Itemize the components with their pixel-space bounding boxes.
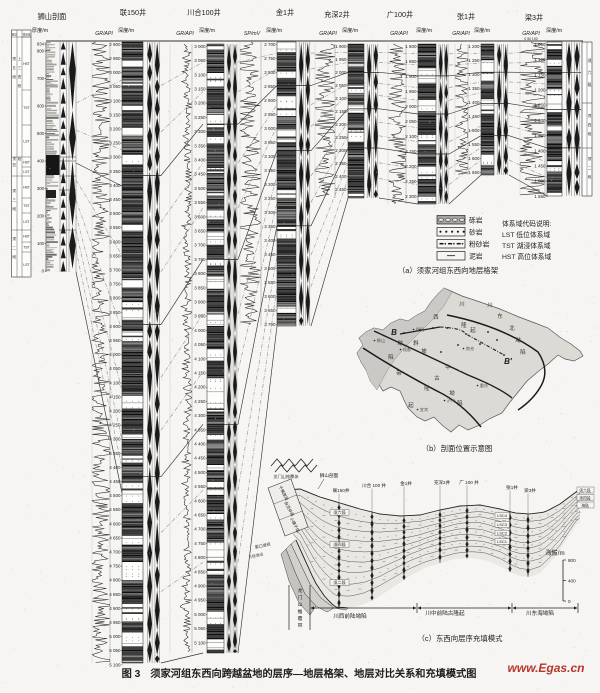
svg-text:深度/m: 深度/m <box>199 26 215 34</box>
svg-text:GR/API: GR/API <box>95 31 113 37</box>
svg-text:4 300: 4 300 <box>194 413 206 418</box>
svg-text:4 250: 4 250 <box>194 399 206 404</box>
svg-text:须四段: 须四段 <box>579 496 591 501</box>
svg-text:2 200: 2 200 <box>335 122 347 127</box>
svg-text:须: 须 <box>12 56 16 61</box>
svg-text:4 100: 4 100 <box>109 380 121 385</box>
svg-text:（c）东西向层序充填模式: （c）东西向层序充填模式 <box>418 634 504 643</box>
svg-text:3 700: 3 700 <box>194 243 206 248</box>
svg-text:须六段: 须六段 <box>579 488 591 493</box>
svg-text:坳: 坳 <box>397 339 403 347</box>
svg-text:梁3井: 梁3井 <box>525 13 543 22</box>
svg-text:600: 600 <box>37 104 45 109</box>
svg-text:500: 500 <box>37 131 45 136</box>
svg-text:深度/m: 深度/m <box>474 26 490 34</box>
svg-text:西: 西 <box>433 314 439 321</box>
svg-text:3 250: 3 250 <box>194 115 206 120</box>
svg-text:推: 推 <box>298 608 303 615</box>
svg-text:3 000: 3 000 <box>264 126 276 131</box>
svg-text:金1井: 金1井 <box>400 480 412 487</box>
svg-text:四: 四 <box>13 163 16 167</box>
svg-text:1 250: 1 250 <box>534 103 546 108</box>
svg-text:2 250: 2 250 <box>405 179 417 184</box>
svg-text:中: 中 <box>445 363 450 371</box>
svg-text:（b）剖面位置示意图: （b）剖面位置示意图 <box>422 444 493 453</box>
svg-text:4 050: 4 050 <box>194 342 206 347</box>
svg-text:4 750: 4 750 <box>194 541 206 546</box>
svg-text:GR/API: GR/API <box>452 31 470 37</box>
svg-text:3 500: 3 500 <box>194 186 206 191</box>
svg-text:3 100: 3 100 <box>194 72 206 77</box>
svg-text:700: 700 <box>37 76 45 81</box>
svg-text:东: 东 <box>497 312 503 320</box>
svg-text:5 050: 5 050 <box>194 626 206 631</box>
svg-text:4 800: 4 800 <box>109 578 121 583</box>
svg-text:www.Egas.cn: www.Egas.cn <box>508 661 585 675</box>
svg-text:HST: HST <box>23 235 30 239</box>
svg-text:LST: LST <box>23 140 29 144</box>
svg-text:泥岩: 泥岩 <box>469 252 483 261</box>
svg-text:1 450: 1 450 <box>534 164 546 169</box>
svg-text:400: 400 <box>37 159 45 164</box>
svg-text:重庆: 重庆 <box>480 382 489 389</box>
svg-text:（a）须家河组东西向地层格架: （a）须家河组东西向地层格架 <box>398 266 499 275</box>
svg-text:3 300: 3 300 <box>109 155 121 160</box>
svg-text:3 500: 3 500 <box>264 266 276 271</box>
svg-text:4 750: 4 750 <box>109 564 121 569</box>
svg-text:3 400: 3 400 <box>194 158 206 163</box>
svg-text:山: 山 <box>298 601 303 608</box>
svg-text:TST: TST <box>23 106 29 110</box>
svg-text:4 500: 4 500 <box>194 470 206 475</box>
svg-text:4 400: 4 400 <box>194 442 206 447</box>
svg-text:2 100: 2 100 <box>405 134 417 139</box>
svg-text:834: 834 <box>37 42 45 47</box>
svg-text:4 850: 4 850 <box>194 569 206 574</box>
svg-text:3 550: 3 550 <box>109 225 121 230</box>
svg-text:砂岩: 砂岩 <box>469 228 483 237</box>
svg-text:GR/API: GR/API <box>176 31 194 37</box>
svg-text:4 650: 4 650 <box>194 513 206 518</box>
svg-text:TST 湖浸体系域: TST 湖浸体系域 <box>502 241 551 250</box>
svg-text:带: 带 <box>396 370 402 377</box>
svg-text:深度/m: 深度/m <box>266 26 282 34</box>
svg-text:3 100: 3 100 <box>109 98 121 103</box>
svg-text:1 500: 1 500 <box>534 179 546 184</box>
svg-text:须: 须 <box>12 188 16 193</box>
svg-text:4 400: 4 400 <box>109 465 121 470</box>
svg-text:门: 门 <box>298 594 303 601</box>
svg-text:2 400: 2 400 <box>335 174 347 179</box>
svg-text:0 50 100: 0 50 100 <box>524 37 537 41</box>
svg-text:1 350: 1 350 <box>468 86 480 91</box>
svg-text:3 250: 3 250 <box>109 141 121 146</box>
svg-text:须: 须 <box>12 236 16 241</box>
svg-text:起: 起 <box>408 402 414 409</box>
svg-text:1 050: 1 050 <box>534 42 546 47</box>
svg-text:4 000: 4 000 <box>194 328 206 333</box>
svg-text:深度/m: 深度/m <box>342 26 358 34</box>
svg-text:1 800: 1 800 <box>405 44 417 49</box>
svg-text:1 500: 1 500 <box>468 128 480 133</box>
svg-text:二: 二 <box>12 246 16 250</box>
svg-text:HST 高位体系域: HST 高位体系域 <box>502 252 552 261</box>
svg-text:六: 六 <box>588 69 592 75</box>
svg-text:HST: HST <box>23 62 30 66</box>
svg-text:5 000: 5 000 <box>194 612 206 617</box>
svg-text:3 950: 3 950 <box>194 314 206 319</box>
svg-text:1 350: 1 350 <box>534 133 546 138</box>
svg-text:SP/mV: SP/mV <box>244 31 261 37</box>
svg-text:3 750: 3 750 <box>109 282 121 287</box>
svg-text:800: 800 <box>37 49 45 54</box>
svg-text:须六段: 须六段 <box>333 509 346 516</box>
svg-text:B′: B′ <box>504 357 513 366</box>
svg-text:二: 二 <box>588 166 592 170</box>
svg-text:深度/m: 深度/m <box>546 26 562 34</box>
svg-text:充深2井: 充深2井 <box>324 10 350 19</box>
svg-text:3 650: 3 650 <box>194 229 206 234</box>
svg-text:陷: 陷 <box>457 399 462 407</box>
svg-text:300: 300 <box>37 186 45 191</box>
svg-text:五: 五 <box>12 66 16 70</box>
svg-text:1 250: 1 250 <box>468 58 480 63</box>
svg-text:南充: 南充 <box>466 345 474 352</box>
svg-text:2 900: 2 900 <box>109 42 121 47</box>
svg-text:TST: TST <box>23 246 29 250</box>
svg-text:1 550: 1 550 <box>468 142 480 147</box>
svg-text:3 150: 3 150 <box>109 112 121 117</box>
svg-text:GR/API: GR/API <box>390 31 408 37</box>
svg-text:4 700: 4 700 <box>194 527 206 532</box>
svg-text:4 950: 4 950 <box>109 620 121 625</box>
svg-text:4 550: 4 550 <box>109 507 121 512</box>
svg-text:斜: 斜 <box>413 339 419 347</box>
svg-text:坡: 坡 <box>421 347 427 355</box>
svg-text:4 200: 4 200 <box>194 385 206 390</box>
svg-text:3 650: 3 650 <box>109 253 121 258</box>
svg-text:1 150: 1 150 <box>534 72 546 77</box>
svg-text:段: 段 <box>588 131 592 136</box>
svg-text:2 050: 2 050 <box>405 119 417 124</box>
svg-text:4 000: 4 000 <box>109 352 121 357</box>
svg-text:3 450: 3 450 <box>264 252 276 257</box>
svg-text:3 500: 3 500 <box>109 211 121 216</box>
svg-text:4 900: 4 900 <box>109 606 121 611</box>
svg-text:4 150: 4 150 <box>194 371 206 376</box>
svg-text:3 350: 3 350 <box>264 224 276 229</box>
svg-text:4 050: 4 050 <box>109 366 121 371</box>
svg-text:1 200: 1 200 <box>468 44 480 49</box>
svg-text:砾岩: 砾岩 <box>469 216 483 225</box>
svg-text:LST: LST <box>23 220 29 224</box>
svg-text:2 450: 2 450 <box>335 187 347 192</box>
svg-text:LSC4: LSC4 <box>497 513 508 518</box>
svg-text:4 150: 4 150 <box>109 394 121 399</box>
svg-text:GR/API: GR/API <box>319 31 337 37</box>
svg-text:四: 四 <box>588 123 592 127</box>
svg-text:1 950: 1 950 <box>335 57 347 62</box>
svg-text:LSC2: LSC2 <box>497 531 508 536</box>
svg-text:4 950: 4 950 <box>194 598 206 603</box>
svg-text:2 300: 2 300 <box>405 194 417 199</box>
svg-text:狮山: 狮山 <box>377 337 385 344</box>
svg-text:4 600: 4 600 <box>109 521 121 526</box>
svg-text:龙: 龙 <box>298 587 303 594</box>
svg-text:川中前陆古隆起: 川中前陆古隆起 <box>425 609 465 617</box>
svg-text:2 700: 2 700 <box>264 42 276 47</box>
svg-text:2 000: 2 000 <box>335 70 347 75</box>
svg-text:3 450: 3 450 <box>194 172 206 177</box>
svg-text:川合100井: 川合100井 <box>187 8 221 17</box>
svg-text:3 600: 3 600 <box>194 214 206 219</box>
svg-text:北: 北 <box>509 324 515 332</box>
svg-text:1 450: 1 450 <box>468 114 480 119</box>
svg-text:1 900: 1 900 <box>335 44 347 49</box>
svg-text:3 950: 3 950 <box>109 338 121 343</box>
svg-text:4 450: 4 450 <box>194 456 206 461</box>
svg-text:2 300: 2 300 <box>335 148 347 153</box>
svg-text:1 850: 1 850 <box>405 59 417 64</box>
svg-text:联150井: 联150井 <box>333 487 350 494</box>
svg-text:800: 800 <box>568 558 576 563</box>
svg-text:3 050: 3 050 <box>194 58 206 63</box>
svg-text:0: 0 <box>568 599 571 604</box>
svg-text:充深2井: 充深2井 <box>434 479 451 486</box>
svg-text:2 250: 2 250 <box>335 135 347 140</box>
svg-text:3 000: 3 000 <box>194 44 206 49</box>
svg-text:坳: 坳 <box>515 336 521 344</box>
svg-text:川西前陆坳陷: 川西前陆坳陷 <box>333 612 367 620</box>
svg-text:广100井: 广100井 <box>387 10 413 19</box>
svg-text:金1井: 金1井 <box>276 8 294 17</box>
svg-text:3 850: 3 850 <box>194 285 206 290</box>
svg-text:4 200: 4 200 <box>109 409 121 414</box>
svg-text:须: 须 <box>588 113 592 118</box>
svg-text:LST: LST <box>23 170 29 174</box>
svg-text:段: 段 <box>588 81 592 87</box>
svg-text:3 350: 3 350 <box>109 169 121 174</box>
svg-text:须: 须 <box>588 156 592 161</box>
svg-text:段: 段 <box>12 206 16 211</box>
svg-text:体系域: 体系域 <box>23 33 31 37</box>
svg-text:段: 段 <box>12 254 16 259</box>
svg-text:隆: 隆 <box>424 384 430 392</box>
svg-text:深度/m: 深度/m <box>118 26 134 34</box>
svg-text:1 200: 1 200 <box>534 88 546 93</box>
svg-text:隆: 隆 <box>461 321 467 329</box>
svg-text:广 100 井: 广 100 井 <box>459 479 479 486</box>
svg-text:4 900: 4 900 <box>194 584 206 589</box>
svg-text:1 400: 1 400 <box>534 148 546 153</box>
svg-text:起: 起 <box>470 327 476 334</box>
svg-text:古: 古 <box>434 374 440 382</box>
svg-text:4 650: 4 650 <box>109 535 121 540</box>
svg-text:3 450: 3 450 <box>109 197 121 202</box>
svg-text:地层: 地层 <box>12 33 18 37</box>
svg-text:海拔/m: 海拔/m <box>545 549 564 557</box>
svg-text:陷: 陷 <box>520 348 525 356</box>
svg-text:川合 100 井: 川合 100 井 <box>362 482 386 489</box>
svg-text:2 150: 2 150 <box>335 109 347 114</box>
svg-text:4 500: 4 500 <box>109 493 121 498</box>
svg-text:3 900: 3 900 <box>194 300 206 305</box>
svg-text:3 200: 3 200 <box>109 127 121 132</box>
svg-text:5 100: 5 100 <box>109 662 121 667</box>
svg-text:粉砂岩: 粉砂岩 <box>469 240 490 249</box>
svg-text:须: 须 <box>588 57 592 63</box>
svg-text:LSC1: LSC1 <box>497 539 508 544</box>
svg-text:3 900: 3 900 <box>109 324 121 329</box>
svg-text:狮山剖面: 狮山剖面 <box>320 472 339 479</box>
svg-text:3 200: 3 200 <box>264 182 276 187</box>
svg-text:3 300: 3 300 <box>194 129 206 134</box>
svg-text:LSC3: LSC3 <box>497 522 508 527</box>
svg-text:3 200: 3 200 <box>194 101 206 106</box>
svg-text:体系域代码说明:: 体系域代码说明: <box>502 219 552 228</box>
svg-text:3 700: 3 700 <box>109 268 121 273</box>
svg-text:HST: HST <box>23 186 30 190</box>
svg-text:段: 段 <box>12 74 16 79</box>
svg-text:2 100: 2 100 <box>335 96 347 101</box>
svg-text:须四段: 须四段 <box>333 541 346 548</box>
svg-text:狮山剖面: 狮山剖面 <box>38 12 67 21</box>
svg-text:川: 川 <box>487 303 492 309</box>
svg-text:三: 三 <box>12 198 16 202</box>
svg-text:1 600: 1 600 <box>468 156 480 161</box>
svg-text:3 000: 3 000 <box>109 70 121 75</box>
svg-text:成都: 成都 <box>403 346 412 353</box>
svg-text:4 550: 4 550 <box>194 484 206 489</box>
svg-text:三: 三 <box>18 66 21 70</box>
svg-text:1 950: 1 950 <box>405 89 417 94</box>
svg-text:覆: 覆 <box>298 616 303 622</box>
svg-text:须二段: 须二段 <box>333 579 346 586</box>
svg-text:4 600: 4 600 <box>194 498 206 503</box>
svg-text:LST 低位体系域: LST 低位体系域 <box>502 230 550 239</box>
svg-text:3 850: 3 850 <box>109 310 121 315</box>
svg-text:100: 100 <box>37 241 45 246</box>
svg-text:海陆: 海陆 <box>581 503 589 508</box>
svg-text:4 100: 4 100 <box>194 356 206 361</box>
svg-text:1 400: 1 400 <box>468 100 480 105</box>
svg-text:LST: LST <box>23 263 29 267</box>
svg-text:段: 段 <box>588 174 592 179</box>
svg-text:3 550: 3 550 <box>194 200 206 205</box>
svg-text:联150井: 联150井 <box>120 8 146 17</box>
svg-text:4 800: 4 800 <box>194 555 206 560</box>
svg-text:2 900: 2 900 <box>264 98 276 103</box>
svg-text:3 400: 3 400 <box>109 183 121 188</box>
svg-text:3 050: 3 050 <box>109 84 121 89</box>
svg-text:2 200: 2 200 <box>405 164 417 169</box>
svg-text:HST: HST <box>23 161 30 165</box>
svg-text:400: 400 <box>568 579 576 584</box>
svg-text:3 750: 3 750 <box>194 257 206 262</box>
svg-text:泸州: 泸州 <box>447 397 455 404</box>
svg-text:5 000: 5 000 <box>109 634 121 639</box>
svg-text:厚度/m: 厚度/m <box>32 26 48 34</box>
svg-text:坳: 坳 <box>449 389 455 397</box>
svg-text:叠: 叠 <box>18 74 21 79</box>
svg-text:张1井: 张1井 <box>506 484 518 491</box>
svg-text:3 350: 3 350 <box>194 143 206 148</box>
svg-text:2 750: 2 750 <box>264 56 276 61</box>
svg-text:4 850: 4 850 <box>109 592 121 597</box>
svg-text:1 100: 1 100 <box>534 57 546 62</box>
svg-text:3 150: 3 150 <box>194 87 206 92</box>
svg-text:4 700: 4 700 <box>109 550 121 555</box>
svg-text:5 100: 5 100 <box>194 640 206 645</box>
svg-text:2 950: 2 950 <box>264 112 276 117</box>
svg-text:宜宾: 宜宾 <box>420 406 428 413</box>
svg-text:梁3井: 梁3井 <box>524 487 536 494</box>
svg-text:200: 200 <box>37 214 45 219</box>
svg-text:3 650: 3 650 <box>264 308 276 313</box>
svg-text:TST: TST <box>23 204 29 208</box>
svg-text:2 350: 2 350 <box>335 161 347 166</box>
svg-text:陷: 陷 <box>388 353 393 361</box>
svg-text:2 000: 2 000 <box>405 104 417 109</box>
svg-text:张1井: 张1井 <box>457 12 475 21</box>
svg-text:3 800: 3 800 <box>194 271 206 276</box>
svg-text:龙门山推覆体: 龙门山推覆体 <box>273 473 299 480</box>
svg-text:深度/m: 深度/m <box>416 26 432 34</box>
svg-text:1 650: 1 650 <box>468 170 480 175</box>
svg-text:图 3 须家河组东西向跨越盆地的层序—地层格架、地层对比关系: 图 3 须家河组东西向跨越盆地的层序—地层格架、地层对比关系和充填模式图 <box>122 667 477 680</box>
svg-text:B: B <box>391 328 397 337</box>
svg-text:川: 川 <box>459 302 464 308</box>
svg-text:2 950: 2 950 <box>109 56 121 61</box>
svg-text:5 050: 5 050 <box>109 648 121 653</box>
